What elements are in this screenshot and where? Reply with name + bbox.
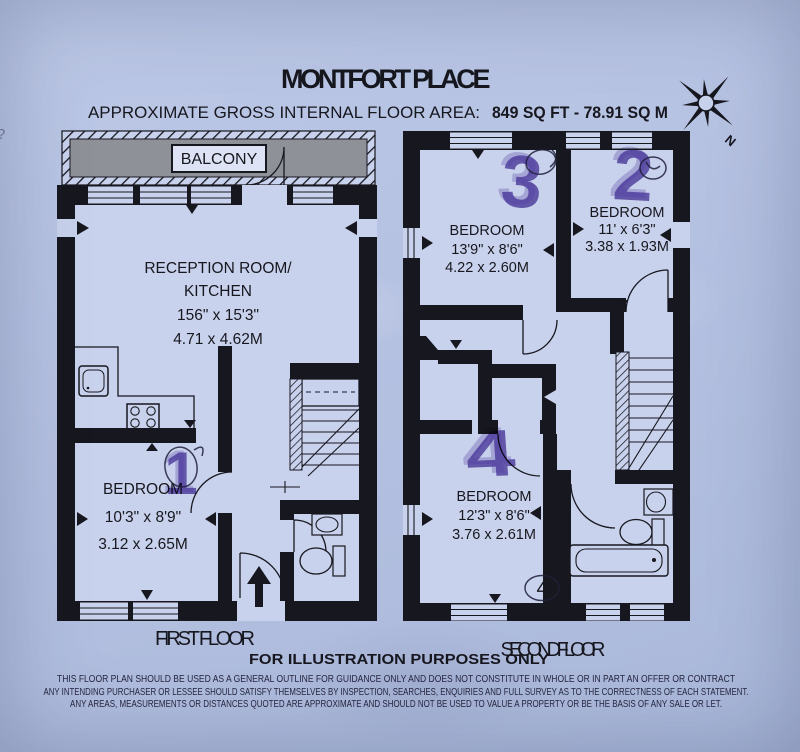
disclaimer-line3: ANY AREAS, MEASUREMENTS OR DISTANCES QUO… [70, 699, 722, 710]
marker-3: 3 [498, 139, 545, 225]
bedroom2-imperial-dims: 11' x 6'3" [598, 222, 655, 238]
toilet-icon [620, 519, 664, 546]
floorplan-page: ? MONTFORT PLACE APPROXIMATE GROSS INTER… [0, 0, 800, 752]
page-title: MONTFORT PLACE [281, 64, 491, 94]
first-floor-plan: BALCONY RECEPTION ROOM/ [57, 131, 377, 621]
first-floor-label: FIRST FLOOR [155, 628, 255, 650]
disclaimer-line2: ANY INTENDING PURCHASER OR LESSEE SHOULD… [44, 687, 749, 698]
bedroom1-imperial-dims: 10'3" x 8'9" [105, 509, 181, 526]
bedroom3-label: BEDROOM 13'9" x 8'6" 4.22 x 2.60M [445, 223, 529, 276]
bathtub-icon [570, 545, 668, 576]
illustration-note: FOR ILLUSTRATION PURPOSES ONLY [249, 652, 549, 668]
balcony: BALCONY [62, 131, 375, 185]
svg-text:KITCHEN: KITCHEN [184, 283, 252, 300]
subtitle-label: APPROXIMATE GROSS INTERNAL FLOOR AREA: [88, 103, 480, 122]
sink-icon [644, 489, 673, 515]
disclaimer-line1: THIS FLOOR PLAN SHOULD BE USED AS A GENE… [57, 674, 735, 685]
svg-text:BEDROOM: BEDROOM [450, 223, 525, 239]
marker-1: 1 [164, 440, 197, 507]
hob-icon [127, 404, 159, 430]
reception-metric-dims: 4.71 x 4.62M [173, 331, 263, 348]
bedroom2-metric-dims: 3.38 x 1.93M [585, 239, 669, 255]
subtitle-area-value: 849 SQ FT - 78.91 SQ M [492, 103, 668, 122]
cupboard [302, 379, 359, 406]
window [88, 185, 333, 205]
svg-text:BEDROOM: BEDROOM [457, 489, 532, 505]
toilet-icon [300, 546, 345, 576]
bedroom4-label: BEDROOM 12'3" x 8'6" 3.76 x 2.61M [452, 489, 536, 543]
floorplan-drawing: MONTFORT PLACE APPROXIMATE GROSS INTERNA… [0, 0, 800, 752]
sink-icon [79, 366, 108, 396]
marker-2: 2 [611, 135, 655, 217]
marker-4: 4 [463, 415, 518, 491]
svg-text:RECEPTION ROOM/: RECEPTION ROOM/ [144, 260, 292, 277]
reception-imperial-dims: 156" x 15'3" [177, 307, 259, 324]
bedroom4-metric-dims: 3.76 x 2.61M [452, 527, 536, 543]
sink-icon [312, 514, 342, 535]
bedroom4-imperial-dims: 12'3" x 8'6" [458, 508, 529, 524]
bedroom3-metric-dims: 4.22 x 2.60M [445, 260, 529, 276]
compass-north-label: N [722, 132, 739, 150]
svg-text:4: 4 [536, 578, 547, 600]
bedroom1-metric-dims: 3.12 x 2.65M [98, 536, 188, 553]
balcony-label: BALCONY [181, 151, 258, 168]
bedroom3-imperial-dims: 13'9" x 8'6" [451, 242, 522, 258]
